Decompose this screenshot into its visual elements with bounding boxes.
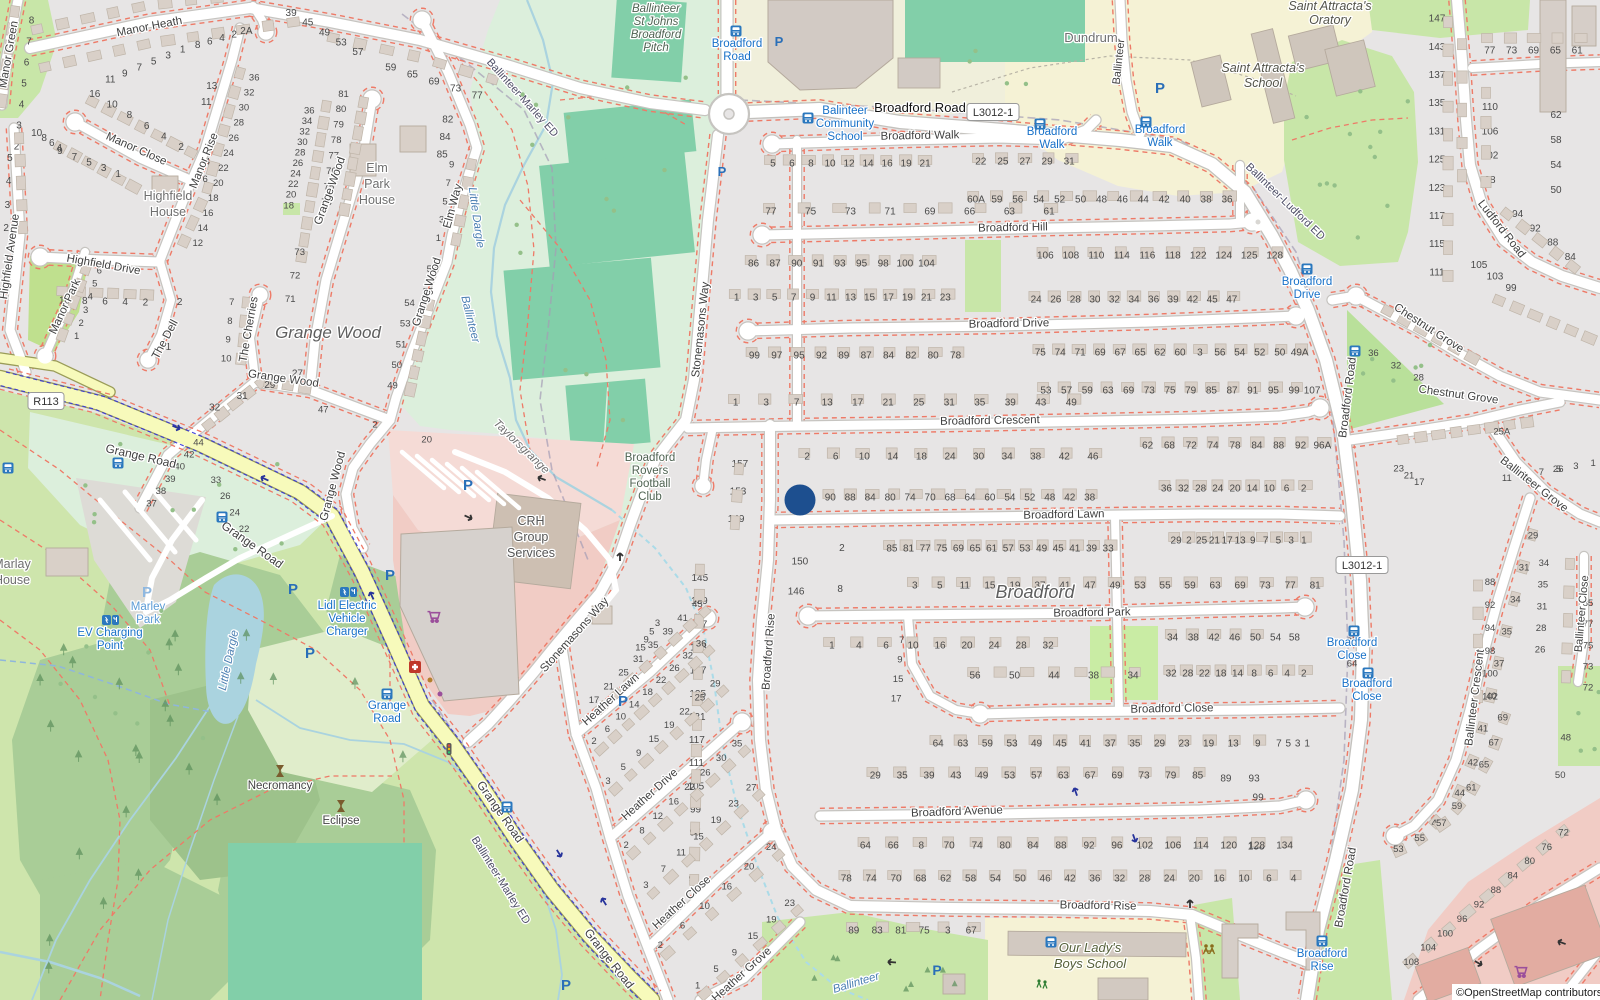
svg-text:48: 48 — [1561, 733, 1572, 744]
svg-text:82: 82 — [905, 351, 917, 362]
svg-text:55: 55 — [1414, 833, 1425, 844]
svg-text:21: 21 — [920, 159, 932, 170]
svg-text:11: 11 — [105, 75, 116, 86]
svg-text:57: 57 — [352, 47, 364, 58]
svg-text:28: 28 — [1139, 874, 1151, 885]
svg-text:28: 28 — [1536, 623, 1547, 634]
svg-text:114: 114 — [1114, 251, 1130, 262]
svg-text:59: 59 — [1185, 581, 1197, 592]
svg-text:18: 18 — [916, 452, 928, 463]
svg-text:95: 95 — [794, 351, 806, 362]
svg-text:63: 63 — [1004, 207, 1016, 218]
svg-text:88: 88 — [1273, 441, 1285, 452]
svg-text:R113: R113 — [33, 396, 58, 408]
svg-text:1: 1 — [180, 45, 186, 56]
svg-text:98: 98 — [878, 259, 890, 270]
svg-text:73: 73 — [1138, 771, 1150, 782]
svg-text:75: 75 — [919, 926, 931, 937]
svg-text:Eclipse: Eclipse — [322, 815, 359, 827]
svg-text:13: 13 — [845, 293, 857, 304]
svg-text:23: 23 — [940, 293, 952, 304]
svg-text:32: 32 — [1109, 295, 1121, 306]
svg-text:24: 24 — [229, 508, 240, 519]
svg-text:6: 6 — [789, 159, 795, 170]
svg-text:32: 32 — [1043, 641, 1055, 652]
svg-text:52: 52 — [1254, 348, 1266, 359]
svg-text:7: 7 — [1539, 467, 1544, 478]
svg-text:67: 67 — [1115, 348, 1127, 359]
svg-text:69: 69 — [428, 77, 440, 88]
svg-text:31: 31 — [1064, 157, 1076, 168]
svg-text:4: 4 — [1291, 874, 1297, 885]
svg-text:92: 92 — [1295, 441, 1307, 452]
svg-text:28: 28 — [1182, 669, 1194, 680]
svg-text:87: 87 — [861, 351, 873, 362]
svg-text:2: 2 — [177, 297, 183, 308]
svg-text:2A: 2A — [240, 26, 253, 37]
svg-text:29: 29 — [1154, 739, 1166, 750]
svg-text:11: 11 — [676, 848, 686, 859]
svg-text:39: 39 — [165, 474, 176, 485]
svg-text:102: 102 — [1137, 841, 1154, 852]
svg-text:2: 2 — [623, 840, 628, 851]
svg-text:24: 24 — [988, 641, 1000, 652]
svg-text:67: 67 — [1085, 771, 1097, 782]
svg-text:9: 9 — [732, 947, 737, 958]
svg-text:Rovers: Rovers — [632, 465, 669, 477]
svg-text:128: 128 — [1248, 841, 1265, 852]
svg-text:18: 18 — [1215, 669, 1227, 680]
svg-text:92: 92 — [816, 351, 828, 362]
svg-text:85: 85 — [437, 149, 449, 160]
svg-text:29: 29 — [1171, 536, 1183, 547]
svg-text:72: 72 — [1558, 827, 1569, 838]
svg-text:20: 20 — [1229, 484, 1241, 495]
svg-text:16: 16 — [722, 881, 733, 892]
svg-text:P: P — [288, 581, 298, 598]
svg-text:18: 18 — [283, 200, 294, 211]
svg-text:3: 3 — [1197, 348, 1203, 359]
svg-text:2: 2 — [839, 543, 845, 554]
svg-text:15: 15 — [693, 831, 704, 842]
svg-text:20: 20 — [421, 434, 432, 445]
svg-text:124: 124 — [1215, 251, 1232, 262]
svg-text:20: 20 — [1189, 874, 1201, 885]
svg-text:84: 84 — [1508, 871, 1519, 882]
svg-text:Broadford: Broadford — [1342, 678, 1393, 690]
svg-text:44: 44 — [193, 437, 204, 448]
svg-text:34: 34 — [1167, 633, 1179, 644]
svg-text:75: 75 — [1164, 386, 1176, 397]
svg-text:P: P — [1155, 80, 1165, 97]
svg-text:66: 66 — [888, 841, 900, 852]
svg-text:53: 53 — [1004, 771, 1016, 782]
svg-text:59: 59 — [991, 195, 1003, 206]
svg-text:19: 19 — [766, 914, 777, 925]
svg-text:53: 53 — [1019, 544, 1031, 555]
svg-text:88: 88 — [1055, 841, 1067, 852]
svg-text:11: 11 — [960, 581, 971, 592]
svg-text:49A: 49A — [1291, 348, 1309, 359]
svg-text:50: 50 — [1274, 348, 1286, 359]
svg-text:4: 4 — [122, 297, 128, 308]
svg-text:28: 28 — [1016, 641, 1028, 652]
svg-text:Park: Park — [136, 614, 160, 626]
svg-text:50: 50 — [392, 360, 403, 371]
svg-text:45: 45 — [1053, 544, 1065, 555]
svg-text:96: 96 — [1457, 914, 1468, 925]
svg-text:4: 4 — [6, 176, 12, 187]
svg-text:11: 11 — [201, 97, 212, 108]
svg-text:69: 69 — [1235, 581, 1247, 592]
svg-text:68: 68 — [915, 874, 927, 885]
svg-text:7: 7 — [791, 293, 797, 304]
svg-text:2: 2 — [1301, 669, 1307, 680]
svg-text:18: 18 — [208, 193, 219, 204]
svg-text:1: 1 — [734, 293, 740, 304]
svg-text:12: 12 — [653, 811, 664, 822]
svg-text:134: 134 — [1276, 841, 1293, 852]
svg-text:Oratory: Oratory — [1309, 13, 1351, 27]
svg-text:35: 35 — [732, 739, 743, 750]
svg-text:53: 53 — [1134, 581, 1146, 592]
svg-text:90: 90 — [791, 259, 803, 270]
svg-text:Broadford Drive: Broadford Drive — [969, 317, 1050, 330]
svg-text:88: 88 — [845, 493, 857, 504]
svg-text:Balinteer: Balinteer — [822, 105, 868, 117]
svg-text:9: 9 — [449, 160, 454, 171]
svg-text:23: 23 — [1393, 464, 1404, 475]
svg-text:71: 71 — [885, 207, 897, 218]
svg-text:49: 49 — [1109, 581, 1121, 592]
svg-text:100: 100 — [1482, 669, 1498, 680]
svg-text:58: 58 — [1550, 135, 1562, 146]
svg-text:5: 5 — [770, 159, 776, 170]
svg-text:46: 46 — [1040, 874, 1052, 885]
svg-text:5: 5 — [937, 581, 943, 592]
svg-text:92: 92 — [1530, 223, 1542, 234]
svg-text:34: 34 — [1539, 558, 1550, 569]
svg-text:Road: Road — [373, 713, 401, 725]
svg-text:1: 1 — [829, 641, 835, 652]
svg-text:St Johns: St Johns — [634, 16, 679, 28]
svg-text:10: 10 — [1264, 484, 1276, 495]
svg-text:Broadford: Broadford — [631, 29, 682, 41]
svg-text:19: 19 — [711, 815, 722, 826]
svg-text:1: 1 — [1304, 739, 1310, 750]
svg-text:14: 14 — [887, 452, 899, 463]
svg-text:74: 74 — [972, 841, 984, 852]
svg-text:84: 84 — [883, 351, 895, 362]
svg-text:52: 52 — [1024, 493, 1036, 504]
svg-text:22: 22 — [1199, 669, 1211, 680]
svg-text:99: 99 — [1253, 793, 1265, 804]
svg-text:Close: Close — [1337, 650, 1366, 662]
svg-text:10: 10 — [699, 901, 710, 912]
svg-text:70: 70 — [925, 493, 937, 504]
svg-text:45: 45 — [302, 18, 314, 29]
svg-text:73: 73 — [1583, 662, 1594, 673]
svg-text:61: 61 — [1572, 46, 1584, 57]
svg-text:52: 52 — [1054, 195, 1066, 206]
svg-text:89: 89 — [848, 926, 860, 937]
svg-text:85: 85 — [1192, 771, 1204, 782]
svg-text:11: 11 — [826, 293, 837, 304]
svg-text:13: 13 — [1228, 739, 1240, 750]
svg-text:7: 7 — [1263, 536, 1269, 547]
svg-text:29: 29 — [1042, 157, 1054, 168]
svg-text:59: 59 — [982, 739, 994, 750]
svg-text:36: 36 — [1148, 295, 1160, 306]
svg-text:2: 2 — [143, 297, 149, 308]
svg-text:28: 28 — [1413, 373, 1424, 384]
svg-text:87: 87 — [1226, 386, 1238, 397]
svg-text:1: 1 — [1301, 536, 1307, 547]
svg-text:15: 15 — [984, 581, 996, 592]
svg-text:7: 7 — [137, 63, 143, 74]
svg-text:116: 116 — [1139, 251, 1155, 262]
svg-text:81: 81 — [1310, 581, 1322, 592]
svg-text:150: 150 — [792, 557, 809, 568]
svg-text:5: 5 — [7, 153, 13, 164]
svg-text:Park: Park — [364, 177, 390, 191]
svg-text:69: 69 — [1095, 348, 1107, 359]
svg-text:11: 11 — [1502, 473, 1512, 484]
svg-text:Broadford: Broadford — [712, 38, 763, 50]
svg-text:7: 7 — [26, 37, 32, 48]
svg-text:34: 34 — [1002, 452, 1014, 463]
svg-text:49: 49 — [1036, 544, 1048, 555]
svg-text:7: 7 — [446, 178, 451, 189]
svg-text:33: 33 — [1103, 544, 1115, 555]
svg-text:41: 41 — [1478, 724, 1489, 735]
svg-text:80: 80 — [336, 104, 347, 115]
svg-text:32: 32 — [1391, 360, 1402, 371]
svg-text:72: 72 — [290, 270, 301, 281]
svg-text:Saint Attracta's: Saint Attracta's — [1221, 61, 1304, 75]
svg-text:30: 30 — [239, 103, 250, 114]
svg-text:2: 2 — [658, 940, 663, 951]
svg-text:39: 39 — [1168, 295, 1180, 306]
svg-text:10: 10 — [907, 641, 919, 652]
svg-text:3: 3 — [5, 200, 11, 211]
svg-text:118: 118 — [1165, 251, 1181, 262]
svg-text:85: 85 — [1206, 386, 1218, 397]
svg-text:62: 62 — [1154, 348, 1166, 359]
svg-text:P: P — [932, 962, 941, 978]
svg-text:100: 100 — [1437, 928, 1453, 939]
svg-text:58: 58 — [965, 874, 977, 885]
svg-text:15: 15 — [748, 931, 759, 942]
svg-text:42: 42 — [1064, 874, 1076, 885]
svg-text:60: 60 — [984, 493, 996, 504]
svg-text:House: House — [0, 573, 30, 587]
svg-text:Charger: Charger — [326, 626, 368, 638]
svg-text:56: 56 — [1012, 195, 1024, 206]
svg-text:69: 69 — [1123, 386, 1135, 397]
svg-text:44: 44 — [1455, 788, 1466, 799]
svg-text:39: 39 — [663, 627, 674, 638]
svg-text:5: 5 — [1286, 739, 1292, 750]
svg-text:8: 8 — [29, 16, 35, 27]
svg-text:99: 99 — [749, 351, 761, 362]
svg-text:23: 23 — [1178, 739, 1190, 750]
svg-text:50: 50 — [1009, 671, 1021, 682]
svg-text:65: 65 — [1135, 348, 1147, 359]
svg-text:6: 6 — [883, 641, 889, 652]
svg-text:27: 27 — [1019, 157, 1031, 168]
svg-text:38: 38 — [1201, 195, 1213, 206]
svg-text:36: 36 — [1161, 484, 1173, 495]
svg-text:79: 79 — [1185, 386, 1197, 397]
svg-text:L3012-1: L3012-1 — [973, 107, 1013, 119]
svg-text:28: 28 — [295, 148, 306, 159]
svg-text:P: P — [561, 977, 571, 994]
svg-text:2: 2 — [231, 30, 237, 41]
svg-text:61: 61 — [1044, 207, 1056, 218]
svg-text:22: 22 — [656, 675, 667, 686]
svg-text:27: 27 — [746, 782, 757, 793]
svg-text:78: 78 — [950, 351, 962, 362]
svg-text:63: 63 — [1210, 581, 1222, 592]
svg-text:104: 104 — [1420, 943, 1436, 954]
svg-text:Highfield: Highfield — [144, 189, 193, 203]
svg-text:Broadford: Broadford — [1327, 637, 1378, 649]
svg-text:CRH: CRH — [517, 514, 544, 528]
svg-text:50: 50 — [1015, 874, 1027, 885]
svg-text:Saint Attracta's: Saint Attracta's — [1288, 0, 1371, 13]
svg-text:12: 12 — [193, 238, 204, 249]
svg-text:4: 4 — [856, 641, 862, 652]
svg-text:88: 88 — [1485, 577, 1496, 588]
svg-text:54: 54 — [990, 874, 1002, 885]
svg-text:80: 80 — [1000, 841, 1012, 852]
svg-text:P: P — [463, 477, 473, 494]
svg-text:22: 22 — [679, 706, 690, 717]
svg-text:16: 16 — [882, 159, 894, 170]
svg-text:3: 3 — [101, 163, 107, 174]
svg-text:39: 39 — [1005, 398, 1017, 409]
svg-text:69: 69 — [1528, 46, 1540, 57]
svg-text:88: 88 — [1491, 885, 1502, 896]
svg-text:57: 57 — [1031, 771, 1043, 782]
svg-text:105: 105 — [1471, 260, 1488, 271]
svg-text:20: 20 — [286, 190, 297, 201]
svg-text:54: 54 — [1550, 160, 1562, 171]
svg-text:4: 4 — [219, 33, 225, 44]
svg-text:83: 83 — [872, 926, 884, 937]
svg-text:25: 25 — [695, 692, 706, 703]
svg-text:100: 100 — [897, 259, 914, 270]
svg-text:8: 8 — [919, 841, 925, 852]
svg-text:49: 49 — [977, 771, 989, 782]
svg-text:35: 35 — [1502, 627, 1513, 638]
svg-text:84: 84 — [865, 493, 877, 504]
svg-text:73: 73 — [1506, 46, 1518, 57]
svg-text:56: 56 — [969, 671, 981, 682]
svg-text:69: 69 — [924, 207, 936, 218]
svg-text:16: 16 — [1214, 874, 1226, 885]
svg-text:16: 16 — [934, 641, 946, 652]
svg-text:81: 81 — [895, 926, 907, 937]
svg-text:23: 23 — [728, 799, 739, 810]
svg-text:2: 2 — [372, 419, 377, 430]
svg-text:44: 44 — [1138, 195, 1150, 206]
svg-text:53: 53 — [400, 319, 411, 330]
svg-text:4: 4 — [1284, 669, 1290, 680]
svg-text:107: 107 — [1304, 386, 1321, 397]
svg-text:7: 7 — [229, 297, 234, 308]
svg-text:P: P — [718, 164, 727, 179]
svg-text:38: 38 — [156, 486, 167, 497]
svg-text:26: 26 — [220, 491, 231, 502]
svg-text:96: 96 — [1111, 841, 1123, 852]
svg-text:62: 62 — [940, 874, 952, 885]
svg-text:5: 5 — [92, 279, 97, 290]
svg-text:17: 17 — [1414, 477, 1425, 488]
svg-text:57: 57 — [1436, 818, 1447, 829]
svg-text:41: 41 — [677, 613, 688, 624]
svg-text:60A: 60A — [967, 195, 985, 206]
svg-text:School: School — [827, 131, 862, 143]
svg-text:24: 24 — [223, 148, 234, 159]
svg-text:9: 9 — [636, 748, 641, 759]
svg-text:50: 50 — [1550, 185, 1562, 196]
svg-text:7: 7 — [794, 398, 800, 409]
svg-text:39: 39 — [1086, 544, 1098, 555]
svg-text:42: 42 — [1059, 452, 1071, 463]
svg-text:17: 17 — [883, 293, 895, 304]
svg-text:8: 8 — [227, 316, 232, 327]
svg-text:9: 9 — [122, 69, 128, 80]
svg-text:6: 6 — [680, 920, 685, 931]
svg-text:2: 2 — [591, 736, 596, 747]
svg-text:84: 84 — [1251, 441, 1263, 452]
svg-text:74: 74 — [905, 493, 917, 504]
svg-text:42: 42 — [1187, 295, 1199, 306]
svg-text:46: 46 — [1229, 633, 1241, 644]
svg-text:35: 35 — [1538, 580, 1549, 591]
svg-text:2: 2 — [1186, 536, 1192, 547]
svg-text:6: 6 — [833, 452, 839, 463]
svg-text:22: 22 — [684, 782, 695, 793]
svg-text:3: 3 — [655, 618, 660, 629]
svg-text:1: 1 — [733, 398, 739, 409]
svg-text:3: 3 — [912, 581, 918, 592]
svg-text:57: 57 — [1003, 544, 1015, 555]
svg-text:77: 77 — [920, 544, 932, 555]
svg-text:85: 85 — [886, 544, 898, 555]
svg-text:115: 115 — [1429, 239, 1445, 250]
svg-text:72: 72 — [1583, 683, 1594, 694]
svg-text:54: 54 — [1033, 195, 1045, 206]
svg-text:3: 3 — [605, 776, 610, 787]
svg-text:69: 69 — [1497, 713, 1508, 724]
svg-text:71: 71 — [285, 294, 296, 305]
svg-text:21: 21 — [921, 293, 933, 304]
svg-text:29: 29 — [1528, 530, 1539, 541]
svg-text:93: 93 — [834, 259, 846, 270]
svg-text:43: 43 — [1035, 398, 1047, 409]
svg-text:59: 59 — [385, 62, 397, 73]
svg-text:4: 4 — [88, 292, 93, 303]
svg-text:90: 90 — [825, 493, 837, 504]
svg-text:8: 8 — [41, 133, 47, 144]
svg-text:5: 5 — [621, 762, 626, 773]
svg-text:106: 106 — [1037, 251, 1054, 262]
svg-text:34: 34 — [1127, 671, 1139, 682]
svg-text:61: 61 — [986, 544, 998, 555]
